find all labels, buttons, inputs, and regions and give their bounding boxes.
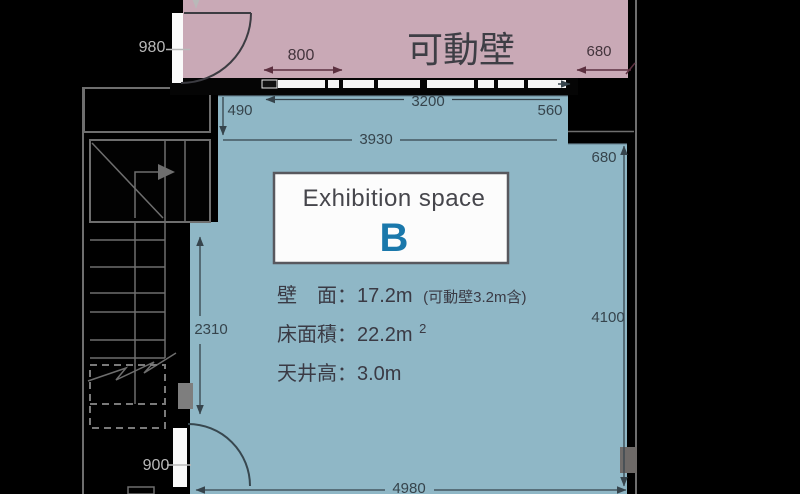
dim-door-top-label: 980: [139, 39, 166, 56]
movable-wall-segment: [498, 80, 524, 88]
dim-upper-width-label: 3930: [359, 131, 392, 148]
spec-floor-area-main: 床面積：22.2m: [277, 323, 413, 346]
dim-door-bottom-label: 900: [143, 457, 170, 474]
wall-fixture-right: [620, 447, 637, 473]
room-a-movable-wall-zone: [183, 0, 628, 78]
movable-wall-title: 可動壁: [407, 29, 515, 70]
spec-ceiling-height: 天井高：3.0m: [277, 362, 401, 385]
spec-wall-length-main: 壁 面：17.2m: [277, 284, 413, 307]
floor-plan-svg: 980 800 可動壁 680 490 3200 560 3930 680 41…: [0, 0, 800, 494]
spec-floor-area: 床面積：22.2m 2: [277, 321, 426, 346]
spec-wall-length-note: (可動壁3.2m含): [423, 289, 526, 306]
dim-right-height-label: 4100: [591, 309, 624, 326]
movable-wall-segment: [378, 80, 420, 88]
movable-wall-segment: [478, 80, 494, 88]
dim-bottom-width-label: 4980: [392, 480, 425, 494]
door-opening-top: [172, 13, 183, 83]
dim-wall-stub-label: 560: [537, 102, 562, 119]
stair-break-zigzag: [88, 353, 176, 381]
exhibition-space-letter: B: [380, 216, 409, 260]
dim-left-height-label: 2310: [194, 321, 227, 338]
dim-movable-wall-length-label: 3200: [411, 93, 444, 110]
movable-wall-segment: [328, 80, 339, 88]
movable-wall-segment: [278, 80, 325, 88]
exhibition-space-title: Exhibition space: [303, 185, 486, 212]
dim-top-inset-label: 490: [227, 102, 252, 119]
spec-floor-area-superscript: 2: [419, 321, 426, 336]
dim-wall-section-label: 800: [288, 47, 315, 64]
door-opening-bottom: [173, 428, 187, 487]
stair-upper-box: [90, 140, 210, 222]
floor-plan: 980 800 可動壁 680 490 3200 560 3930 680 41…: [0, 0, 800, 494]
movable-wall-segment: [427, 80, 474, 88]
dim-top-right-offset-label: 680: [586, 43, 611, 60]
dim-right-offset-label: 680: [591, 149, 616, 166]
movable-wall-segment: [343, 80, 374, 88]
movable-wall-segment-dark: [262, 80, 277, 88]
wall-fixture-left: [178, 383, 193, 409]
bottom-edge-stub: [128, 487, 154, 494]
